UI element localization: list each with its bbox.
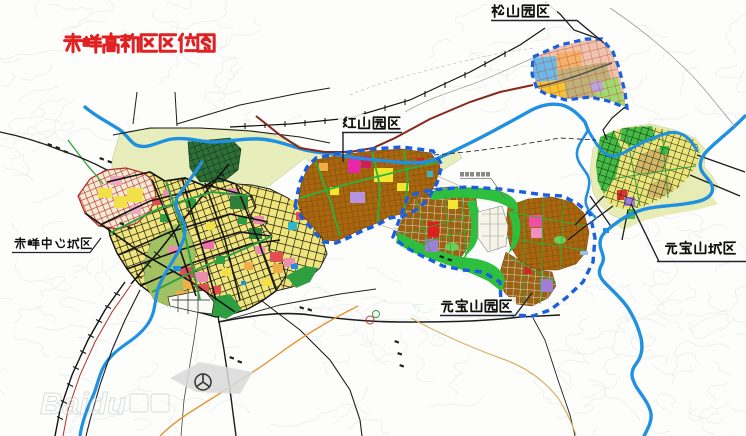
svg-text:Baidu: Baidu bbox=[40, 386, 126, 421]
